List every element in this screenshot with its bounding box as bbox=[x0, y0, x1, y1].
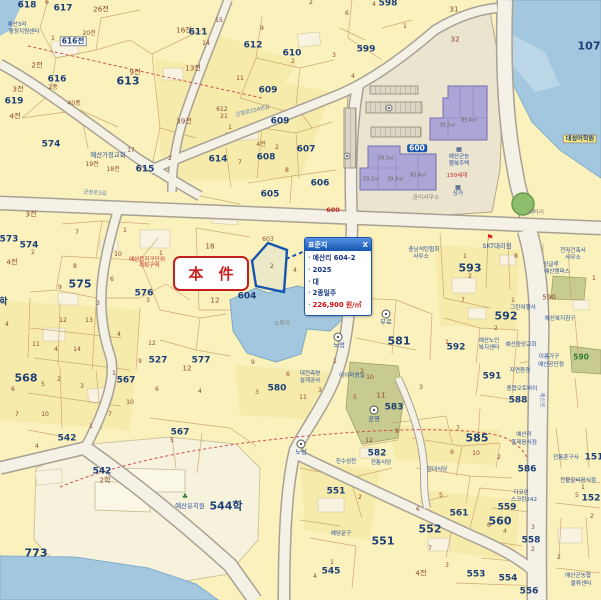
map-canvas bbox=[0, 0, 601, 600]
callout-item: ·2025 bbox=[308, 265, 369, 277]
callout-item-text: 2종일주 bbox=[313, 289, 337, 297]
subject-case-label: 本 件 bbox=[183, 263, 238, 284]
callout-item-text: 226,900 원/㎡ bbox=[313, 301, 362, 309]
bullet-icon: · bbox=[308, 266, 311, 274]
callout-header: 표준지 X bbox=[305, 238, 371, 251]
close-icon[interactable]: X bbox=[363, 241, 368, 249]
bullet-icon: · bbox=[308, 301, 311, 309]
traffic-rotary bbox=[512, 193, 534, 215]
callout-item-text: 예산리 604-2 bbox=[313, 254, 356, 262]
bullet-icon: · bbox=[308, 254, 311, 262]
callout-item-text: 대 bbox=[313, 278, 319, 286]
map-viewer[interactable]: 618661726전예산3리행정지원센터20전616전12전6162종9전613… bbox=[0, 0, 601, 600]
standard-lot-callout: 표준지 X ·예산리 604-2·2025·대·2종일주·226,900 원/㎡ bbox=[304, 237, 372, 316]
callout-body: ·예산리 604-2·2025·대·2종일주·226,900 원/㎡ bbox=[305, 251, 371, 315]
callout-title: 표준지 bbox=[308, 240, 327, 250]
subject-case-box: 本 件 bbox=[173, 256, 249, 291]
callout-item: ·2종일주 bbox=[308, 288, 369, 300]
callout-item-text: 2025 bbox=[313, 266, 332, 274]
bullet-icon: · bbox=[308, 289, 311, 297]
bullet-icon: · bbox=[308, 278, 311, 286]
callout-item: ·226,900 원/㎡ bbox=[308, 300, 369, 312]
callout-item: ·예산리 604-2 bbox=[308, 253, 369, 265]
callout-item: ·대 bbox=[308, 277, 369, 289]
